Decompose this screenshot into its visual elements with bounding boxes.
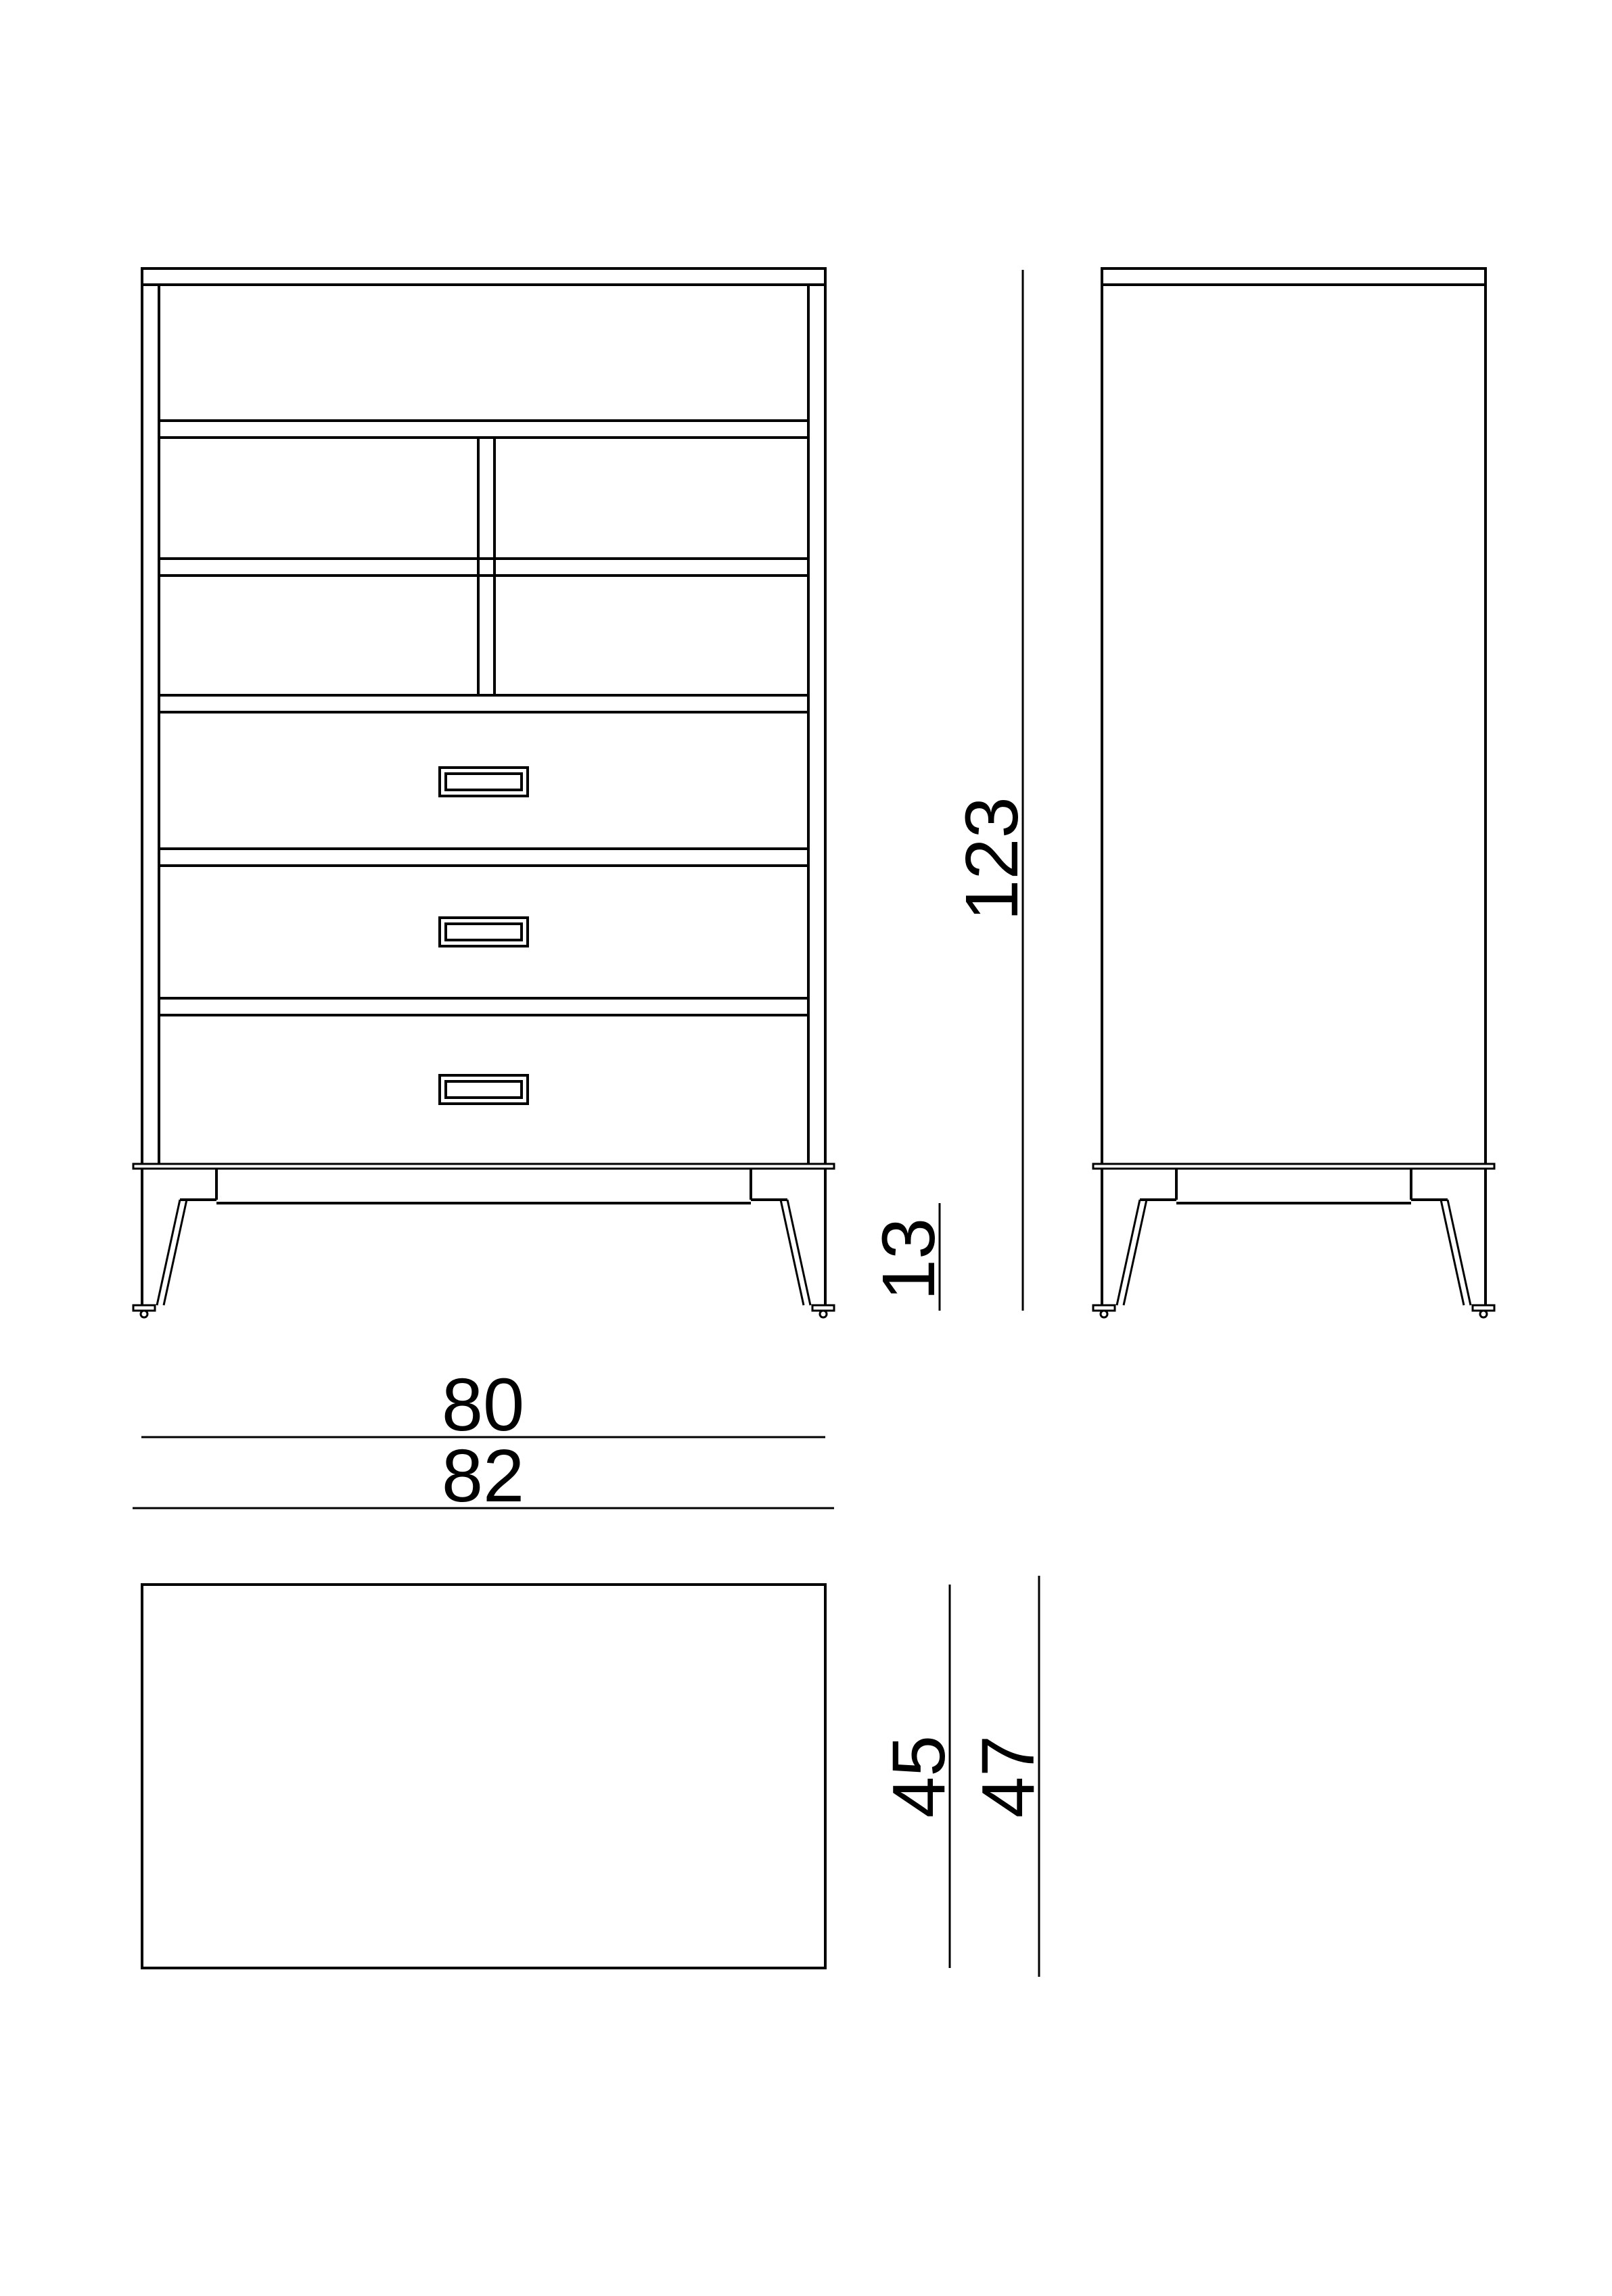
dimension-labels: 123 13 80 82 45 47	[442, 797, 1050, 1818]
side-legs	[1093, 1169, 1494, 1317]
drawer-handle-2	[440, 918, 528, 946]
handle-outer	[440, 1075, 528, 1104]
dimension-label-total-height: 123	[950, 797, 1034, 921]
plan-view	[142, 1585, 825, 1968]
front-right-leg-slant	[787, 1200, 810, 1305]
front-base-flange	[133, 1164, 834, 1169]
side-view	[1093, 267, 1494, 1317]
side-right-leg-slant	[1441, 1200, 1464, 1305]
side-right-foot-tip	[1480, 1311, 1487, 1317]
front-view	[133, 267, 834, 1317]
handle-inner	[446, 924, 522, 940]
dimension-lines	[133, 270, 1039, 1977]
dimension-label-carcass-depth: 45	[877, 1735, 961, 1818]
technical-drawing-page: 123 13 80 82 45 47	[0, 0, 1612, 2296]
front-left-foot-tip	[141, 1311, 147, 1317]
side-left-leg-slant	[1124, 1200, 1147, 1305]
side-right-leg-slant	[1448, 1200, 1471, 1305]
furniture-dimension-drawing: 123 13 80 82 45 47	[0, 0, 1612, 2296]
front-right-leg-slant	[781, 1200, 804, 1305]
drawing-lines	[133, 267, 1494, 1977]
side-base-flange	[1093, 1164, 1494, 1169]
side-left-leg-slant	[1117, 1200, 1140, 1305]
handle-outer	[440, 768, 528, 796]
front-legs	[133, 1169, 834, 1317]
drawer-handle-3	[440, 1075, 528, 1104]
front-right-foot-tip	[820, 1311, 827, 1317]
dimension-label-overall-width: 82	[442, 1434, 524, 1518]
dimension-label-overall-depth: 47	[967, 1735, 1050, 1818]
handle-outer	[440, 918, 528, 946]
dimension-label-leg-height: 13	[867, 1218, 950, 1301]
plan-outline	[142, 1585, 825, 1968]
front-left-leg-slant	[157, 1200, 180, 1305]
handle-inner	[446, 1081, 522, 1098]
handle-inner	[446, 774, 522, 790]
front-left-leg-slant	[164, 1200, 187, 1305]
drawer-handle-1	[440, 768, 528, 796]
side-left-foot-tip	[1101, 1311, 1107, 1317]
